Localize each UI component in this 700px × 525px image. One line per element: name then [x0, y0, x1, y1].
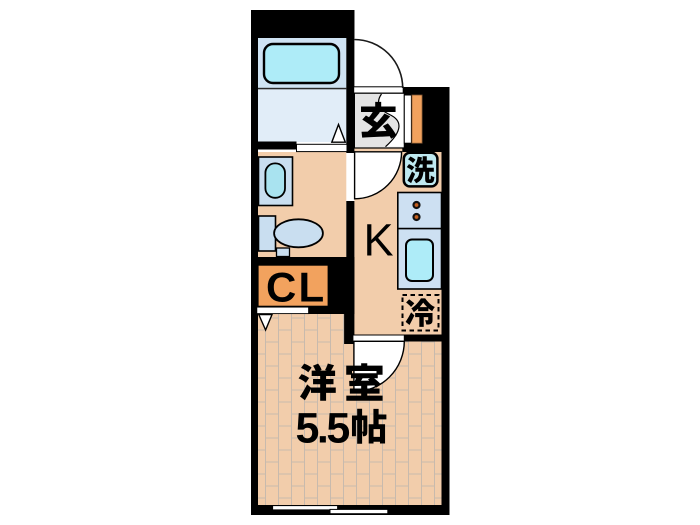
svg-text:K: K — [364, 215, 394, 266]
svg-text:5.5: 5.5 — [296, 405, 350, 453]
svg-text:CL: CL — [266, 264, 326, 311]
